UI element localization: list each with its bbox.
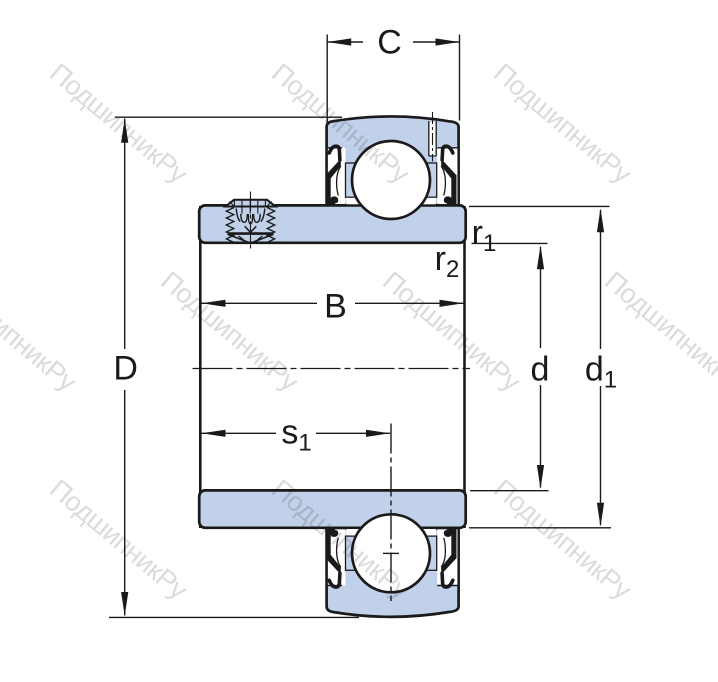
svg-text:B: B bbox=[324, 288, 347, 326]
svg-text:d: d bbox=[531, 351, 550, 389]
svg-text:C: C bbox=[377, 24, 402, 62]
svg-text:D: D bbox=[113, 350, 138, 388]
